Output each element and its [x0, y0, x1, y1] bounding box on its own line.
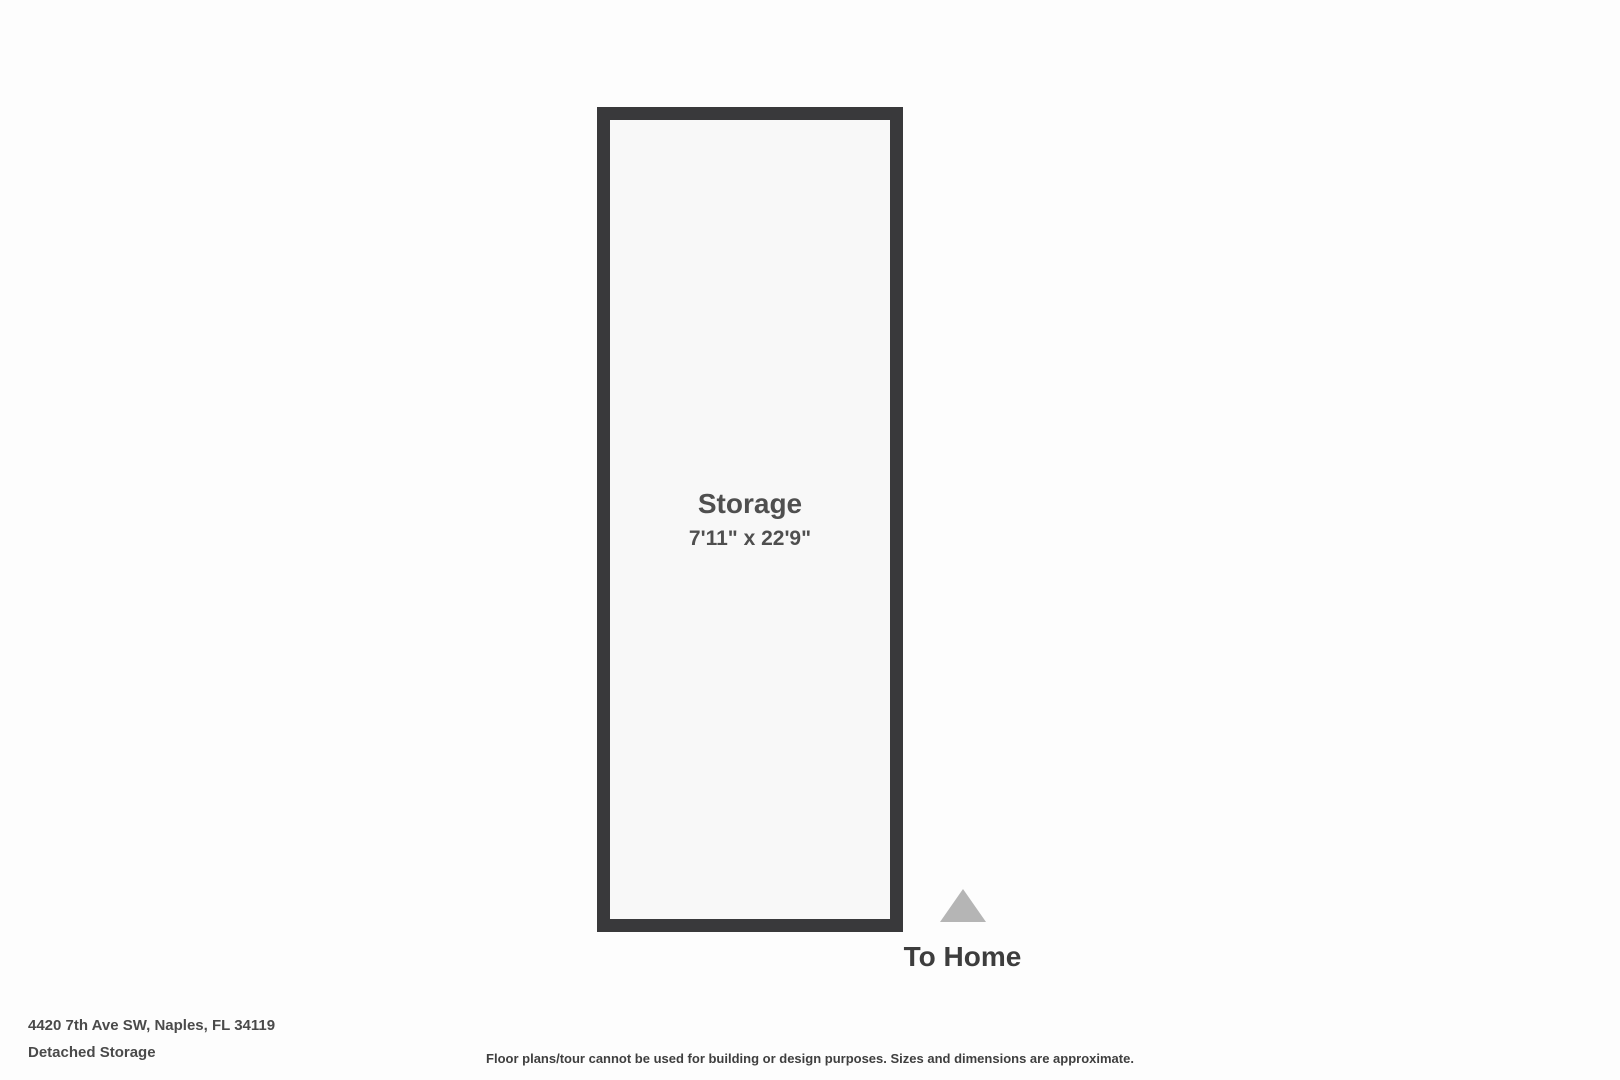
triangle-up-icon — [940, 889, 986, 922]
room-storage: Storage 7'11" x 22'9" — [597, 107, 903, 932]
room-dimensions-label: 7'11" x 22'9" — [689, 527, 811, 551]
to-home-label: To Home — [900, 941, 1025, 973]
room-name-label: Storage — [698, 488, 802, 520]
disclaimer-text: Floor plans/tour cannot be used for buil… — [0, 1051, 1620, 1066]
property-address: 4420 7th Ave SW, Naples, FL 34119 — [28, 1017, 275, 1035]
to-home-marker: To Home — [900, 889, 1025, 973]
floorplan-canvas: Storage 7'11" x 22'9" To Home 4420 7th A… — [0, 0, 1620, 1080]
